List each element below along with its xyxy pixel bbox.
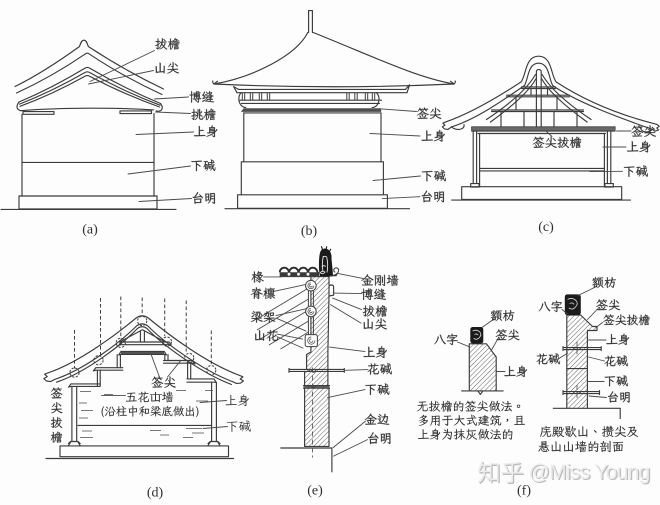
svg-text:(d): (d) <box>147 486 164 501</box>
svg-text:@Miss Young: @Miss Young <box>529 461 650 484</box>
svg-text:(b): (b) <box>301 224 318 239</box>
svg-text:(c): (c) <box>538 220 554 235</box>
svg-text:(a): (a) <box>82 223 98 238</box>
svg-text:(f): (f) <box>517 484 531 499</box>
svg-text:(e): (e) <box>307 484 323 499</box>
